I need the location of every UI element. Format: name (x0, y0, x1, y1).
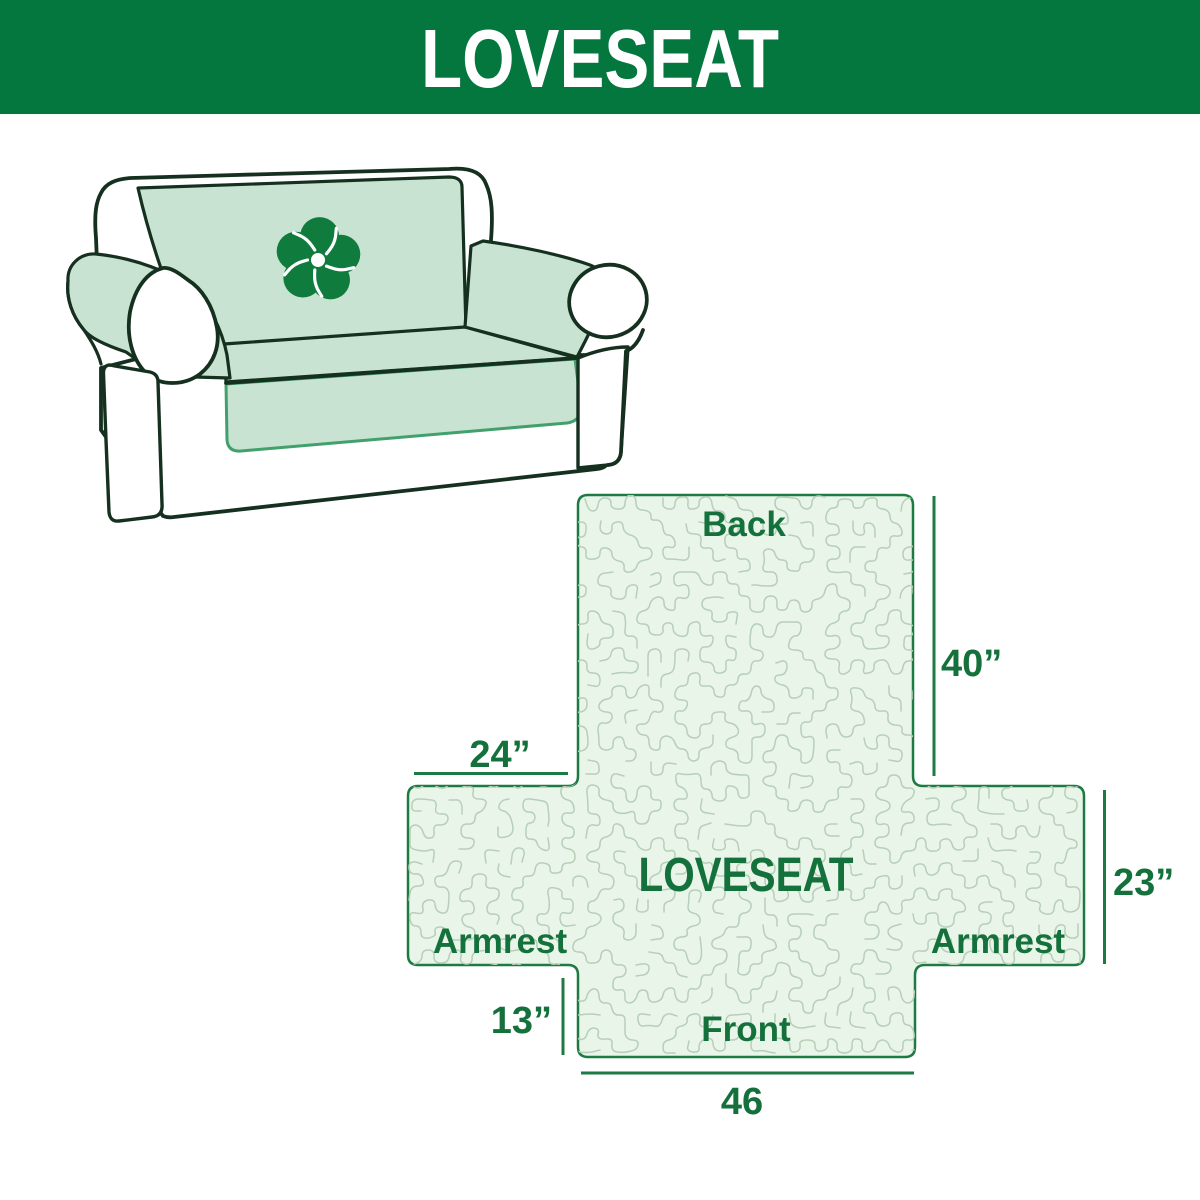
svg-text:13”: 13” (491, 1000, 552, 1042)
svg-text:LOVESEAT: LOVESEAT (639, 849, 854, 902)
svg-text:Armrest: Armrest (433, 922, 568, 961)
svg-text:46: 46 (721, 1081, 763, 1123)
svg-text:24”: 24” (469, 734, 530, 776)
svg-text:Back: Back (702, 505, 786, 544)
svg-text:Armrest: Armrest (931, 922, 1066, 961)
svg-text:Front: Front (701, 1010, 791, 1049)
svg-text:40”: 40” (941, 643, 1002, 685)
svg-text:23”: 23” (1113, 862, 1174, 904)
svg-text:LOVESEAT: LOVESEAT (421, 12, 779, 105)
